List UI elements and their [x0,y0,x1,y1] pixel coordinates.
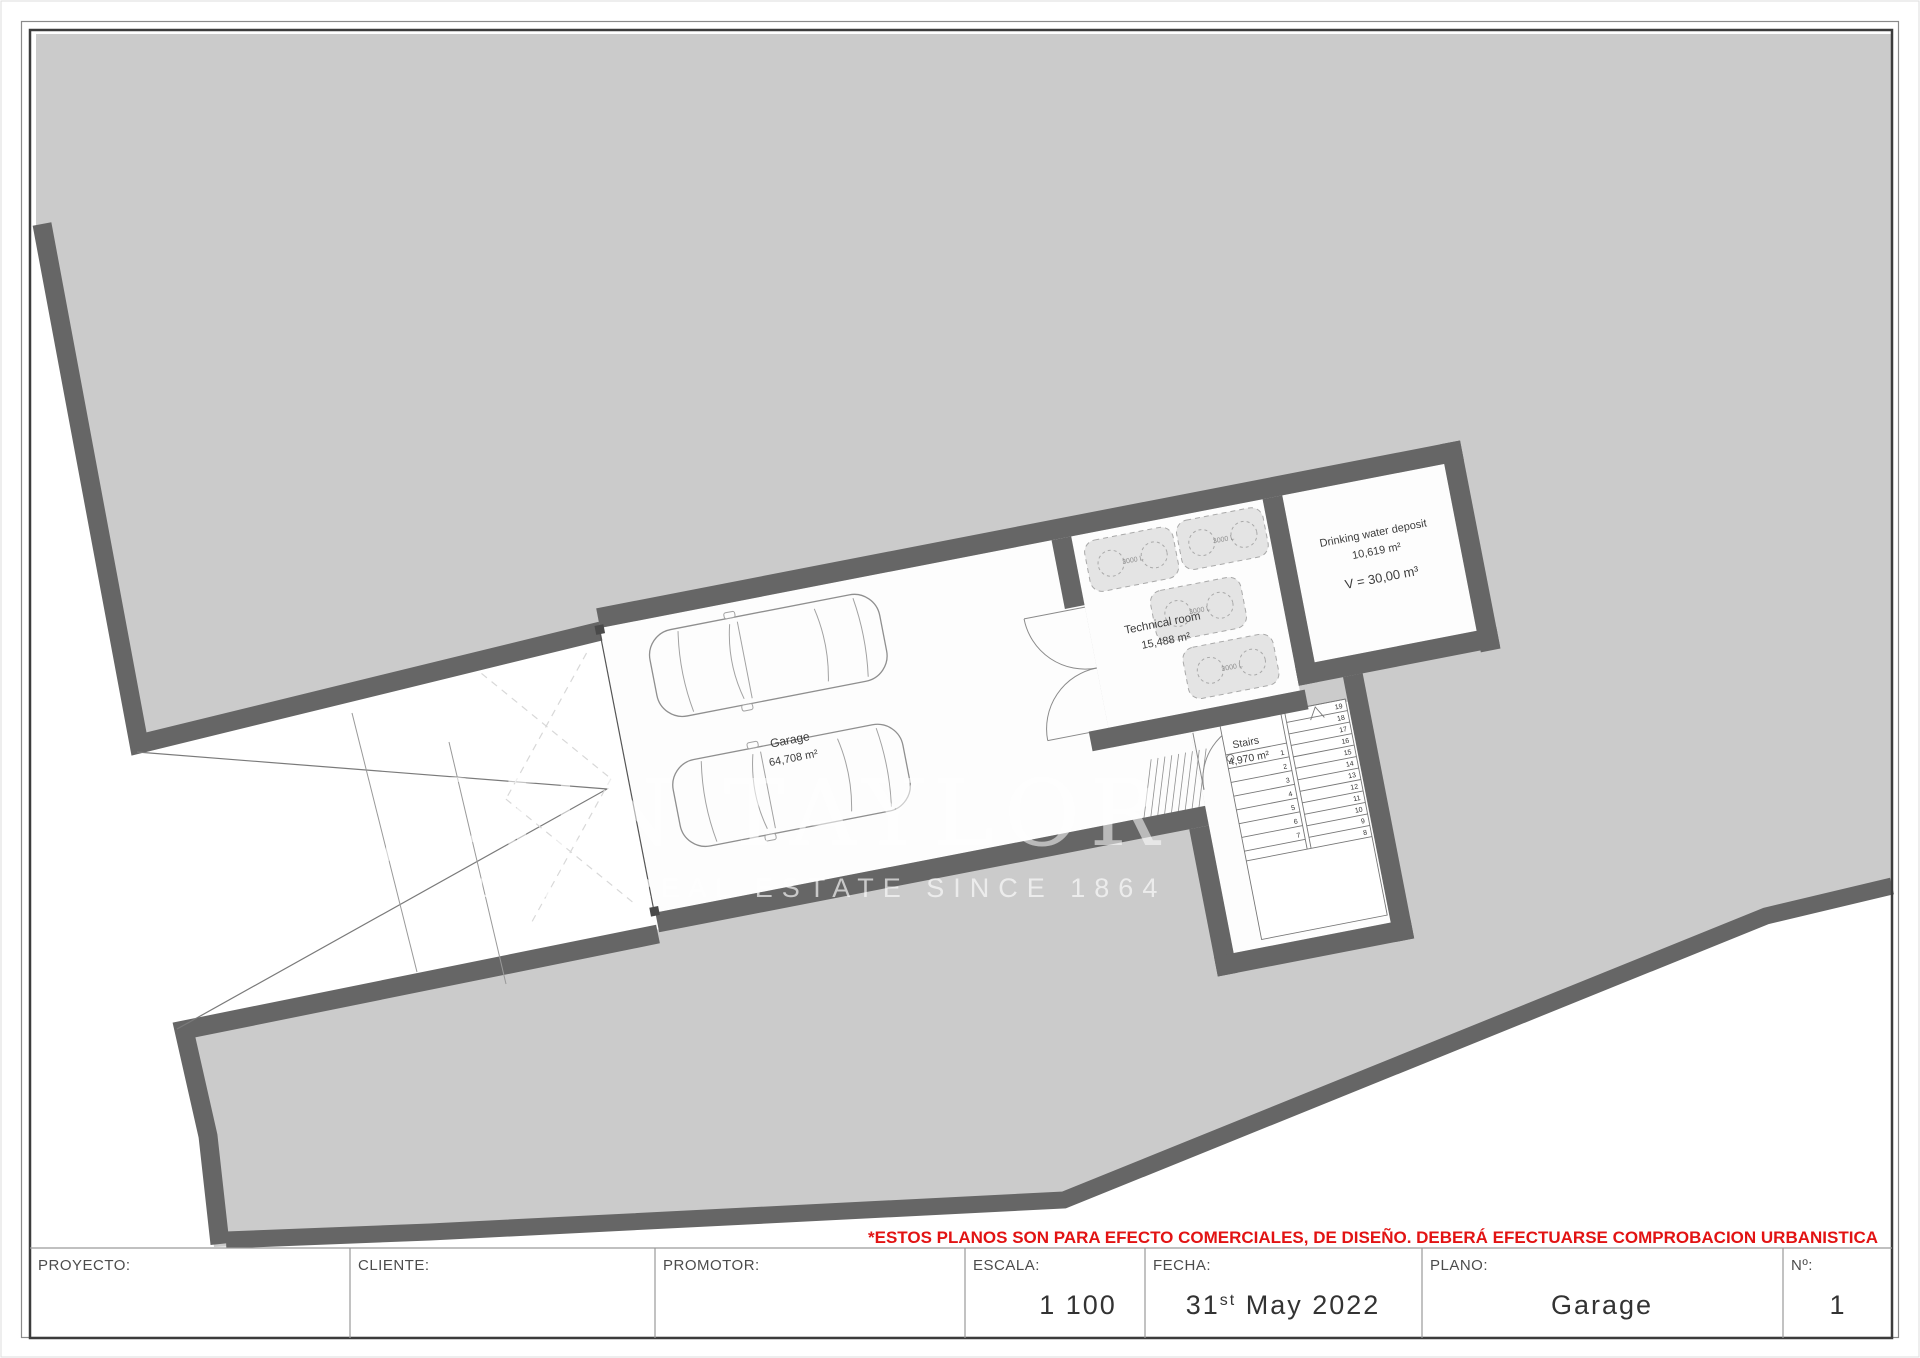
fecha-label: FECHA: [1153,1257,1211,1274]
proyecto-label: PROYECTO: [38,1257,131,1274]
numero-label: Nº: [1791,1257,1813,1274]
stair-step-number: 12 [1350,783,1359,791]
fecha-rest: May 2022 [1236,1290,1380,1320]
stair-step-number: 15 [1343,749,1352,757]
stair-step-number: 19 [1334,703,1343,711]
stair-step-number: 16 [1341,738,1350,746]
door-post-bottom [649,906,660,917]
floor-plan-drawing: 3000 L 3000 L 3000 L 3000 L [0,0,1920,1358]
escala-label: ESCALA: [973,1257,1040,1274]
plan-sheet: 3000 L 3000 L 3000 L 3000 L [0,0,1920,1358]
stair-step-number: 10 [1354,806,1363,814]
fecha-value: 31st May 2022 [1186,1290,1381,1320]
watermark-tagline: LUXURY REAL ESTATE SINCE 1864 [454,873,1167,903]
title-block: PROYECTO: CLIENTE: PROMOTOR: ESCALA: FEC… [38,1257,1847,1320]
disclaimer-text: *ESTOS PLANOS SON PARA EFECTO COMERCIALE… [868,1227,1878,1247]
plano-value: Garage [1551,1290,1653,1320]
stair-step-number: 17 [1339,726,1348,734]
stair-step-number: 14 [1345,761,1354,769]
stair-step-number: 18 [1337,715,1346,723]
fecha-day: 31 [1186,1290,1220,1320]
fecha-superscript: st [1220,1292,1236,1309]
watermark-brand: JOHN TAYLOR [363,760,1169,867]
cliente-label: CLIENTE: [358,1257,430,1274]
stair-step-number: 11 [1353,795,1362,803]
stair-step-number: 13 [1348,772,1357,780]
water-deposit-floor [1282,464,1476,662]
plano-label: PLANO: [1430,1257,1488,1274]
promotor-label: PROMOTOR: [663,1257,760,1274]
door-post-top [595,624,606,635]
numero-value: 1 [1829,1290,1846,1320]
escala-value: 1 100 [1039,1290,1117,1320]
